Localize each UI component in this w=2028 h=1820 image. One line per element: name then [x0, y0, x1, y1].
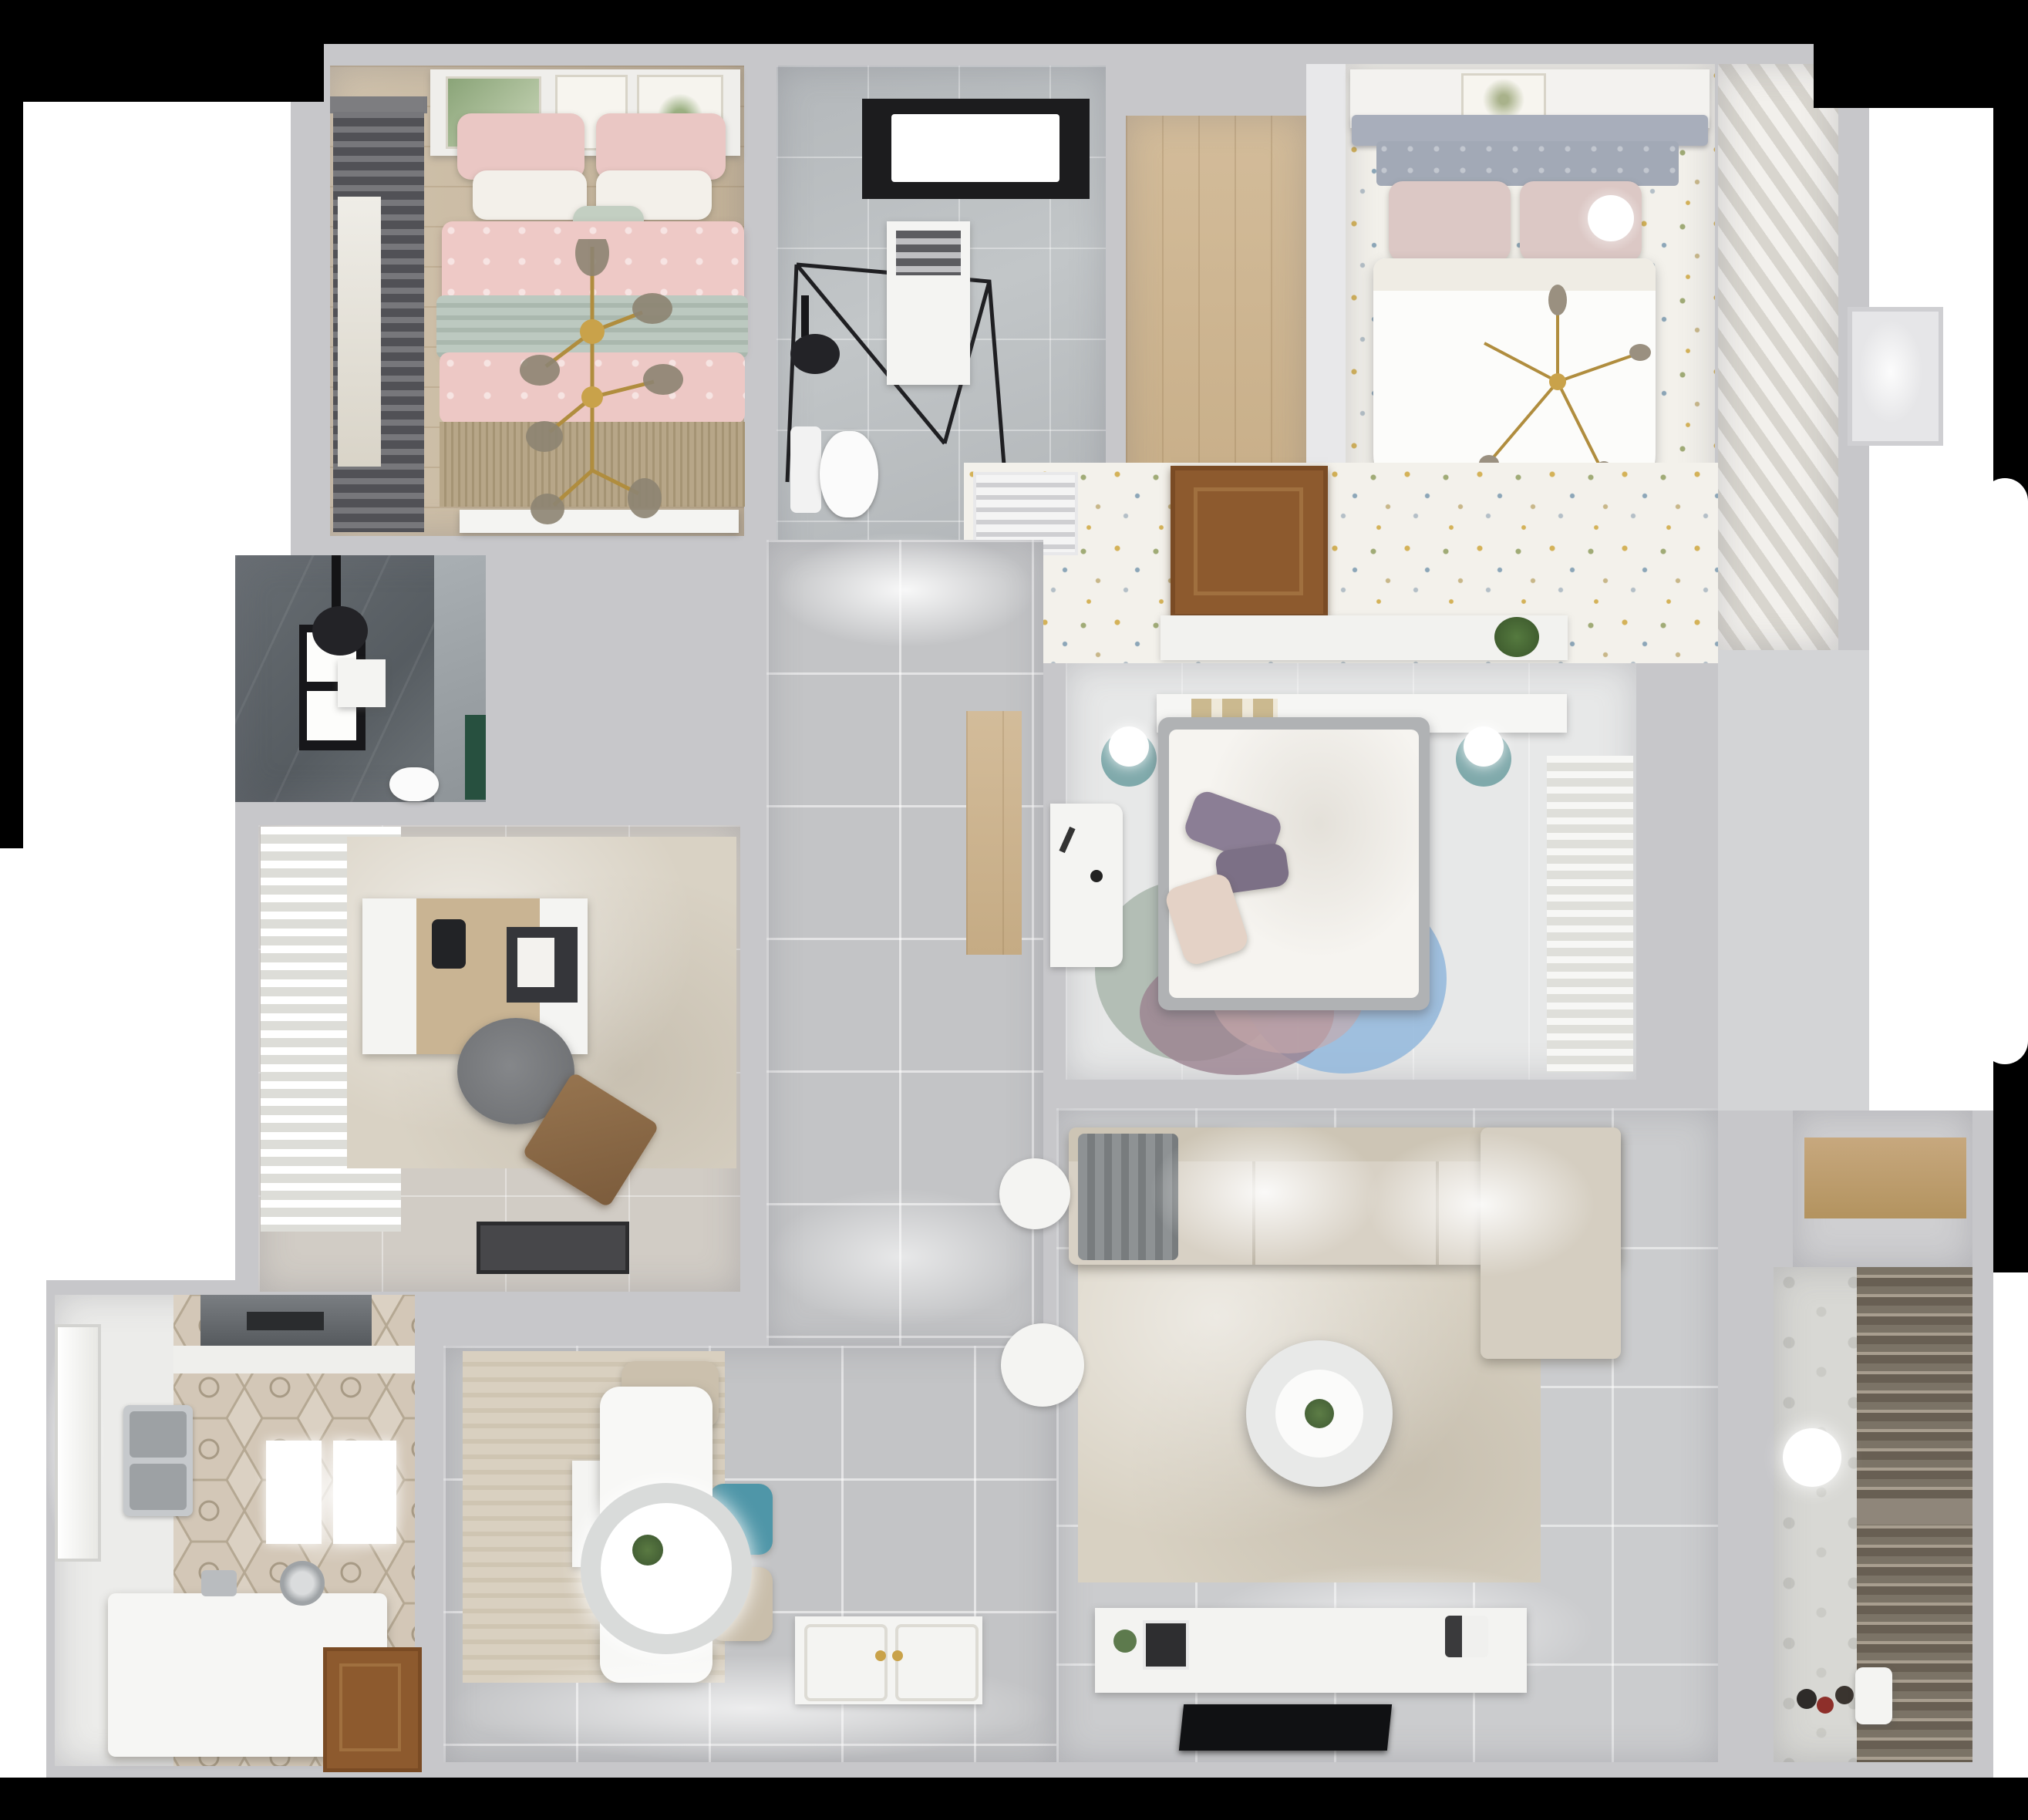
coffee-plant — [1305, 1399, 1334, 1428]
door-carving-right — [895, 1624, 979, 1701]
shower-head — [790, 334, 840, 374]
pillow-white-left — [473, 170, 587, 220]
console-decor — [1445, 1616, 1488, 1657]
sink-basin-1 — [130, 1411, 187, 1458]
alcove-glow — [1858, 319, 1923, 424]
pouf — [1001, 1323, 1084, 1407]
door-handle-right — [892, 1650, 903, 1661]
gold-branch-chandelier — [477, 239, 754, 524]
pillow-blush-left — [1389, 181, 1511, 261]
doormat — [477, 1222, 629, 1274]
toy-chair — [1855, 1667, 1892, 1724]
sink-basin-2 — [130, 1464, 187, 1510]
lamp-mint-right — [1464, 726, 1504, 767]
bath-cabinet — [887, 221, 970, 385]
corridor-glow — [774, 532, 1036, 648]
sofa-light-2 — [1365, 1131, 1596, 1278]
toilet-tank — [790, 426, 821, 513]
kitchen-window — [55, 1324, 101, 1562]
range-hood — [200, 1295, 372, 1347]
counter — [173, 1346, 415, 1373]
window-light — [338, 197, 381, 467]
entry-door — [795, 1616, 982, 1704]
tub-faucet — [201, 1570, 237, 1596]
dining — [443, 1346, 1056, 1762]
storage-wood-shelf — [1804, 1137, 1966, 1218]
gold-cross-chandelier — [1461, 274, 1654, 490]
side-table — [999, 1158, 1070, 1229]
storage-nook — [1793, 1111, 1972, 1267]
blind-rail — [1857, 1498, 1972, 1525]
dark-shower-head — [312, 606, 368, 656]
desk-pen — [1059, 827, 1075, 853]
door-carving-left — [804, 1624, 888, 1701]
cabinet-label — [896, 231, 961, 275]
study — [258, 825, 740, 1292]
toy-1 — [1797, 1689, 1817, 1709]
toy-3 — [1835, 1686, 1854, 1704]
exterior-halo-left-strip — [0, 848, 46, 1778]
kitchen-door-panel — [339, 1663, 401, 1751]
door-handle-left — [875, 1650, 886, 1661]
paper — [517, 938, 554, 987]
tufted-headboard — [1376, 141, 1679, 186]
window-glow — [891, 114, 1059, 182]
toy-2 — [1817, 1697, 1834, 1714]
toilet — [820, 431, 878, 517]
black-corner-top-left — [0, 0, 324, 102]
bathroom-dark — [235, 555, 486, 802]
bathroom-window — [862, 99, 1090, 199]
toilet-dark-bath — [389, 767, 439, 801]
table-plant — [632, 1535, 663, 1566]
curtain-rod — [330, 96, 427, 113]
living-room — [1056, 1108, 1718, 1762]
wall-niche — [338, 659, 386, 707]
wood-door — [1171, 466, 1328, 618]
corridor-glow-2 — [766, 1188, 1036, 1326]
sphere-light — [1783, 1428, 1841, 1487]
sheer-curtains — [1547, 756, 1633, 1072]
tv-panel — [1179, 1704, 1392, 1751]
kitchen-wood-door — [323, 1647, 422, 1772]
black-bottom-strip — [0, 1778, 2028, 1820]
right-window-alcove — [1848, 307, 1943, 446]
balcony — [1774, 1267, 1972, 1762]
hood-vent — [247, 1312, 324, 1330]
bedroom-center — [1066, 663, 1636, 1080]
desk-bedroom3 — [1050, 804, 1123, 967]
tv-console — [1095, 1608, 1527, 1693]
black-corner-top-right — [1814, 0, 2028, 108]
round-drain — [280, 1561, 325, 1606]
green-glass — [465, 715, 486, 800]
ledge-plant — [1494, 617, 1539, 657]
shower-arm — [801, 295, 809, 337]
white-board-2 — [333, 1441, 396, 1544]
console-frames — [1143, 1620, 1189, 1670]
desk-knob — [1090, 870, 1103, 882]
kitchen — [55, 1295, 415, 1766]
floorplan-stage — [0, 0, 2028, 1820]
green-plate — [1113, 1630, 1137, 1653]
side-hall — [1718, 650, 1869, 1111]
desk-tray — [507, 927, 578, 1003]
desk-lamp — [432, 919, 466, 969]
double-sink — [123, 1405, 193, 1516]
door-panel — [1194, 487, 1303, 595]
louver-wardrobe — [1718, 64, 1838, 650]
exterior-halo-right-blob — [1982, 478, 2028, 1064]
doorway-wood-threshold — [966, 711, 1022, 955]
white-board-1 — [266, 1441, 322, 1544]
bed-frame — [1158, 717, 1430, 1010]
round-pendant-lamp — [581, 1483, 752, 1654]
exterior-halo-right — [1869, 44, 1993, 1111]
lamp-mint-left — [1109, 726, 1149, 767]
bedroom-pink — [330, 66, 744, 536]
sofa-light-1 — [1149, 1119, 1380, 1266]
exterior-halo-left — [23, 731, 235, 1280]
exterior-halo-bottom-right — [1993, 1272, 2028, 1778]
sphere-lamp — [1588, 195, 1634, 241]
